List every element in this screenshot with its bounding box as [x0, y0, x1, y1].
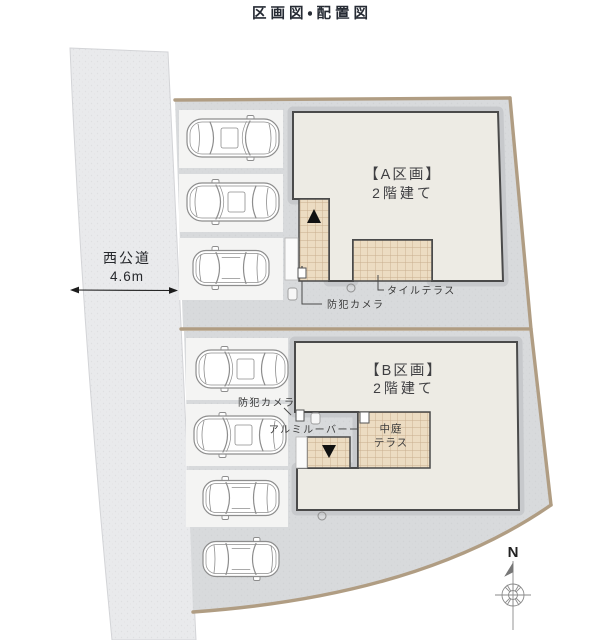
- car-icon: [187, 180, 279, 225]
- building-a: 【A区画】 2階建て 防犯カメラ タイルテラス: [285, 112, 503, 311]
- security-camera-icon: [298, 268, 306, 278]
- boundary-north: [175, 98, 510, 100]
- plot-b-floors-label: 2階建て: [373, 380, 435, 396]
- porch-a: [285, 238, 298, 280]
- compass: N: [495, 544, 531, 630]
- car-icon: [196, 347, 288, 392]
- utility-pole-icon: [311, 413, 320, 424]
- car-icon: [203, 538, 279, 581]
- plot-a-floors-label: 2階建て: [372, 185, 434, 201]
- louver-label: アルミルーバー: [269, 424, 349, 436]
- camera-label-b: 防犯カメラ: [238, 396, 296, 409]
- plot-b-name-label: 【B区画】: [365, 362, 443, 379]
- site-plan-page: 区画図・配置図: [0, 0, 602, 640]
- plot-a-name-label: 【A区画】: [364, 166, 442, 183]
- utility-pole-icon: [288, 288, 297, 300]
- car-icon: [203, 477, 279, 520]
- security-camera-icon: [296, 410, 304, 421]
- porch-b: [296, 437, 307, 468]
- car-icon: [187, 116, 279, 161]
- compass-north-label: N: [508, 544, 519, 561]
- courtyard-label-line1: 中庭: [380, 422, 403, 435]
- road-name-label: 西公道: [103, 250, 151, 266]
- courtyard-label-line2: テラス: [374, 437, 408, 449]
- road-width-label: 4.6m: [110, 269, 144, 284]
- tile-terrace-a: [353, 240, 432, 281]
- compass-needle-icon: [505, 563, 513, 576]
- camera-label-a: 防犯カメラ: [327, 298, 385, 311]
- security-camera-icon: [360, 412, 369, 423]
- site-plan-drawing: 西公道 4.6m 【A区画】: [0, 0, 602, 640]
- tile-terrace-label: タイルテラス: [387, 285, 456, 297]
- car-icon: [193, 247, 269, 290]
